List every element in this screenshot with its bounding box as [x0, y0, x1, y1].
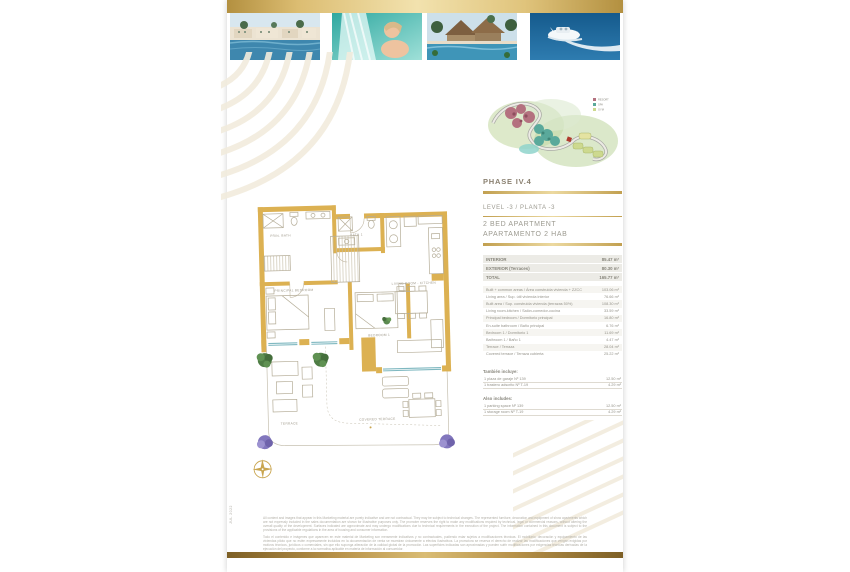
label-terrace: TERRACE	[281, 421, 298, 425]
legend-item-gym: GYM	[598, 108, 604, 112]
label-bedroom-1: BEDROOM 1	[368, 333, 390, 338]
plant-icon	[382, 317, 391, 325]
map-legend: RESORT SPA GYM	[593, 98, 609, 112]
row-label: 1 plaza de garaje Nº 139	[484, 377, 526, 381]
table-row: 1 trastero adscrito Nº T-194.29 m²	[483, 383, 622, 390]
summary-row: EXTERIOR (Terraces) 80.30 m²	[483, 264, 622, 272]
masterplan-map: RESORT SPA GYM	[481, 93, 622, 175]
label-living: LIVING ROOM - KITCHEN	[392, 281, 437, 286]
row-label: Principal bedroom / Dormitorio principal	[486, 316, 552, 320]
row-label: Bathroom 1 / Baño 1	[486, 338, 521, 342]
summary-row: INTERIOR 85.47 m²	[483, 255, 622, 263]
legend-item-spa: SPA	[598, 103, 603, 107]
level-label: LEVEL -3 / PLANTA -3	[483, 205, 555, 211]
row-label: Covered terrace / Terraza cubierta	[486, 352, 544, 356]
areas-table: INTERIOR 85.47 m² EXTERIOR (Terraces) 80…	[483, 255, 622, 358]
table-row: 1 storage room Nº T-194.29 m²	[483, 410, 622, 417]
row-label: Built area / Sup. construida vivienda (t…	[486, 302, 573, 306]
table-row: Built + common areas / Área construida v…	[483, 286, 622, 293]
table-row: Living room-kitchen / Salón-comedor-coci…	[483, 308, 622, 315]
table-row: En-suite bathroom / Baño principal6.76 m…	[483, 322, 622, 329]
label-bath-1: BATH 1	[350, 233, 363, 237]
tree-icon	[257, 353, 273, 368]
screenshot-stage: PRIN. BATH BATH 1 PRINCIPAL BEDROOM BEDR…	[0, 0, 850, 572]
legend-item-resort: RESORT	[598, 98, 609, 102]
palm-watermark-top-left	[221, 52, 411, 207]
unit-type-es: APARTAMENTO 2 HAB	[483, 231, 567, 238]
top-gold-band	[227, 0, 623, 13]
resort-pool-photo	[230, 13, 320, 60]
section-title: También incluye:	[483, 369, 622, 374]
table-row: Bathroom 1 / Baño 14.47 m²	[483, 336, 622, 343]
label-principal-bedroom: PRINCIPAL BEDROOM	[274, 288, 313, 293]
also-includes-en: Also includes: 1 parking space Nº 13912.…	[483, 396, 622, 416]
terrace-light-icon	[370, 426, 372, 428]
row-value: 103.06 m²	[602, 288, 619, 292]
row-value: 76.66 m²	[604, 295, 619, 299]
catamaran-photo	[530, 13, 620, 60]
bush-icon	[439, 434, 455, 448]
legal-disclaimer: All content and images that appear in th…	[263, 516, 587, 554]
row-value: 4.29 m²	[608, 410, 621, 414]
table-row: 1 parking space Nº 13912.50 m²	[483, 403, 622, 410]
brochure-page: PRIN. BATH BATH 1 PRINCIPAL BEDROOM BEDR…	[227, 0, 623, 572]
also-includes-es: También incluye: 1 plaza de garaje Nº 13…	[483, 369, 622, 389]
gold-rule	[483, 191, 622, 194]
row-label: Bedroom 1 / Dormitorio 1	[486, 331, 528, 335]
row-value: 6.76 m²	[606, 324, 619, 328]
row-label: Living room-kitchen / Salón-comedor-coci…	[486, 309, 560, 313]
gold-rule-thick	[483, 243, 622, 246]
table-row: Principal bedroom / Dormitorio principal…	[483, 315, 622, 322]
table-row: Built area / Sup. construida vivienda (t…	[483, 300, 622, 307]
row-value: 108.30 m²	[602, 302, 619, 306]
gold-rule-thin	[483, 216, 622, 217]
row-label: Built + common areas / Área construida v…	[486, 288, 582, 292]
edition-date: JUL 2022	[229, 505, 233, 524]
row-value: 4.47 m²	[606, 338, 619, 342]
summary-label: TOTAL	[486, 275, 500, 280]
row-value: 4.29 m²	[608, 383, 621, 387]
table-row: Terrace / Terraza28.04 m²	[483, 344, 622, 351]
row-value: 25.22 m²	[604, 352, 619, 356]
disclaimer-en: All content and images that appear in th…	[263, 516, 587, 532]
row-value: 11.69 m²	[604, 331, 619, 335]
row-label: 1 trastero adscrito Nº T-19	[484, 383, 528, 387]
table-row: Living area / Sup. útil vivienda interio…	[483, 293, 622, 300]
glass-doors	[268, 339, 441, 374]
bush-icon	[257, 435, 273, 449]
tree-icon	[313, 352, 329, 367]
spa-waterfall-photo	[332, 13, 422, 60]
row-value: 12.50 m²	[606, 404, 621, 408]
summary-value: 165.77 m²	[599, 275, 619, 280]
terrace-outline	[266, 341, 449, 449]
summary-row: TOTAL 165.77 m²	[483, 273, 622, 281]
row-value: 28.04 m²	[604, 345, 619, 349]
summary-value: 80.30 m²	[602, 266, 619, 271]
bottom-gold-band	[227, 552, 623, 558]
row-label: Terrace / Terraza	[486, 345, 514, 349]
table-row: 1 plaza de garaje Nº 13912.50 m²	[483, 376, 622, 383]
phase-title: PHASE IV.4	[483, 177, 623, 186]
tropical-resort-photo	[427, 13, 517, 60]
compass-icon	[252, 459, 272, 479]
row-value: 16.80 m²	[604, 316, 619, 320]
disclaimer-es: Todo el contenido e imágenes que aparece…	[263, 535, 587, 551]
summary-label: EXTERIOR (Terraces)	[486, 266, 530, 271]
summary-value: 85.47 m²	[602, 257, 619, 262]
row-label: 1 storage room Nº T-19	[484, 410, 523, 414]
row-label: 1 parking space Nº 139	[484, 404, 523, 408]
row-label: En-suite bathroom / Baño principal	[486, 324, 544, 328]
summary-label: INTERIOR	[486, 257, 507, 262]
section-title: Also includes:	[483, 396, 622, 401]
row-value: 12.50 m²	[606, 377, 621, 381]
unit-type-en: 2 BED APARTMENT	[483, 221, 556, 228]
row-value: 33.59 m²	[604, 309, 619, 313]
detail-rows: Built + common areas / Área construida v…	[483, 286, 622, 358]
row-label: Living area / Sup. útil vivienda interio…	[486, 295, 549, 299]
label-covered-terrace: COVERED TERRACE	[359, 417, 395, 422]
label-prin-bath: PRIN. BATH	[270, 233, 291, 238]
floorplan: PRIN. BATH BATH 1 PRINCIPAL BEDROOM BEDR…	[235, 190, 463, 482]
table-row: Bedroom 1 / Dormitorio 111.69 m²	[483, 329, 622, 336]
table-row: Covered terrace / Terraza cubierta25.22 …	[483, 351, 622, 358]
